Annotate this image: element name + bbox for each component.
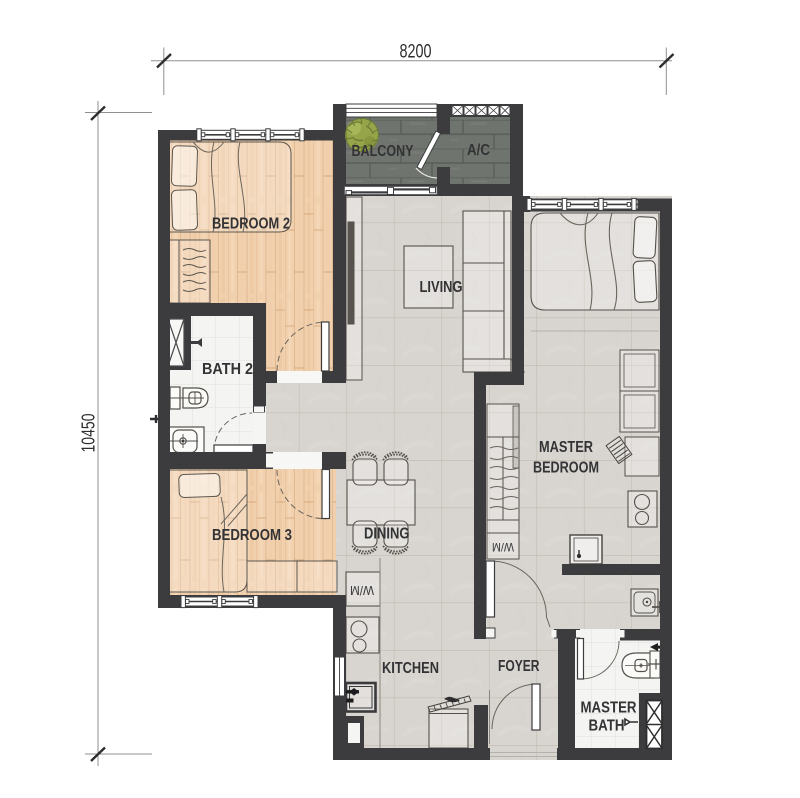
svg-text:BALCONY: BALCONY — [352, 143, 414, 160]
svg-text:LIVING: LIVING — [420, 279, 463, 296]
svg-text:10450: 10450 — [78, 414, 99, 453]
svg-text:BATH 2: BATH 2 — [202, 361, 253, 378]
svg-text:BEDROOM 3: BEDROOM 3 — [212, 527, 292, 544]
svg-text:W/M: W/M — [350, 583, 374, 597]
svg-text:MASTER: MASTER — [581, 700, 637, 717]
svg-text:8200: 8200 — [400, 42, 432, 63]
svg-text:FOYER: FOYER — [498, 658, 540, 675]
svg-text:BEDROOM 2: BEDROOM 2 — [212, 216, 290, 233]
svg-text:MASTER: MASTER — [539, 439, 593, 456]
svg-text:W/M: W/M — [492, 540, 514, 554]
svg-text:DINING: DINING — [364, 526, 410, 543]
svg-text:A/C: A/C — [467, 142, 490, 159]
svg-text:BATH: BATH — [589, 718, 625, 735]
svg-text:KITCHEN: KITCHEN — [382, 660, 439, 677]
svg-text:BEDROOM: BEDROOM — [533, 460, 599, 477]
